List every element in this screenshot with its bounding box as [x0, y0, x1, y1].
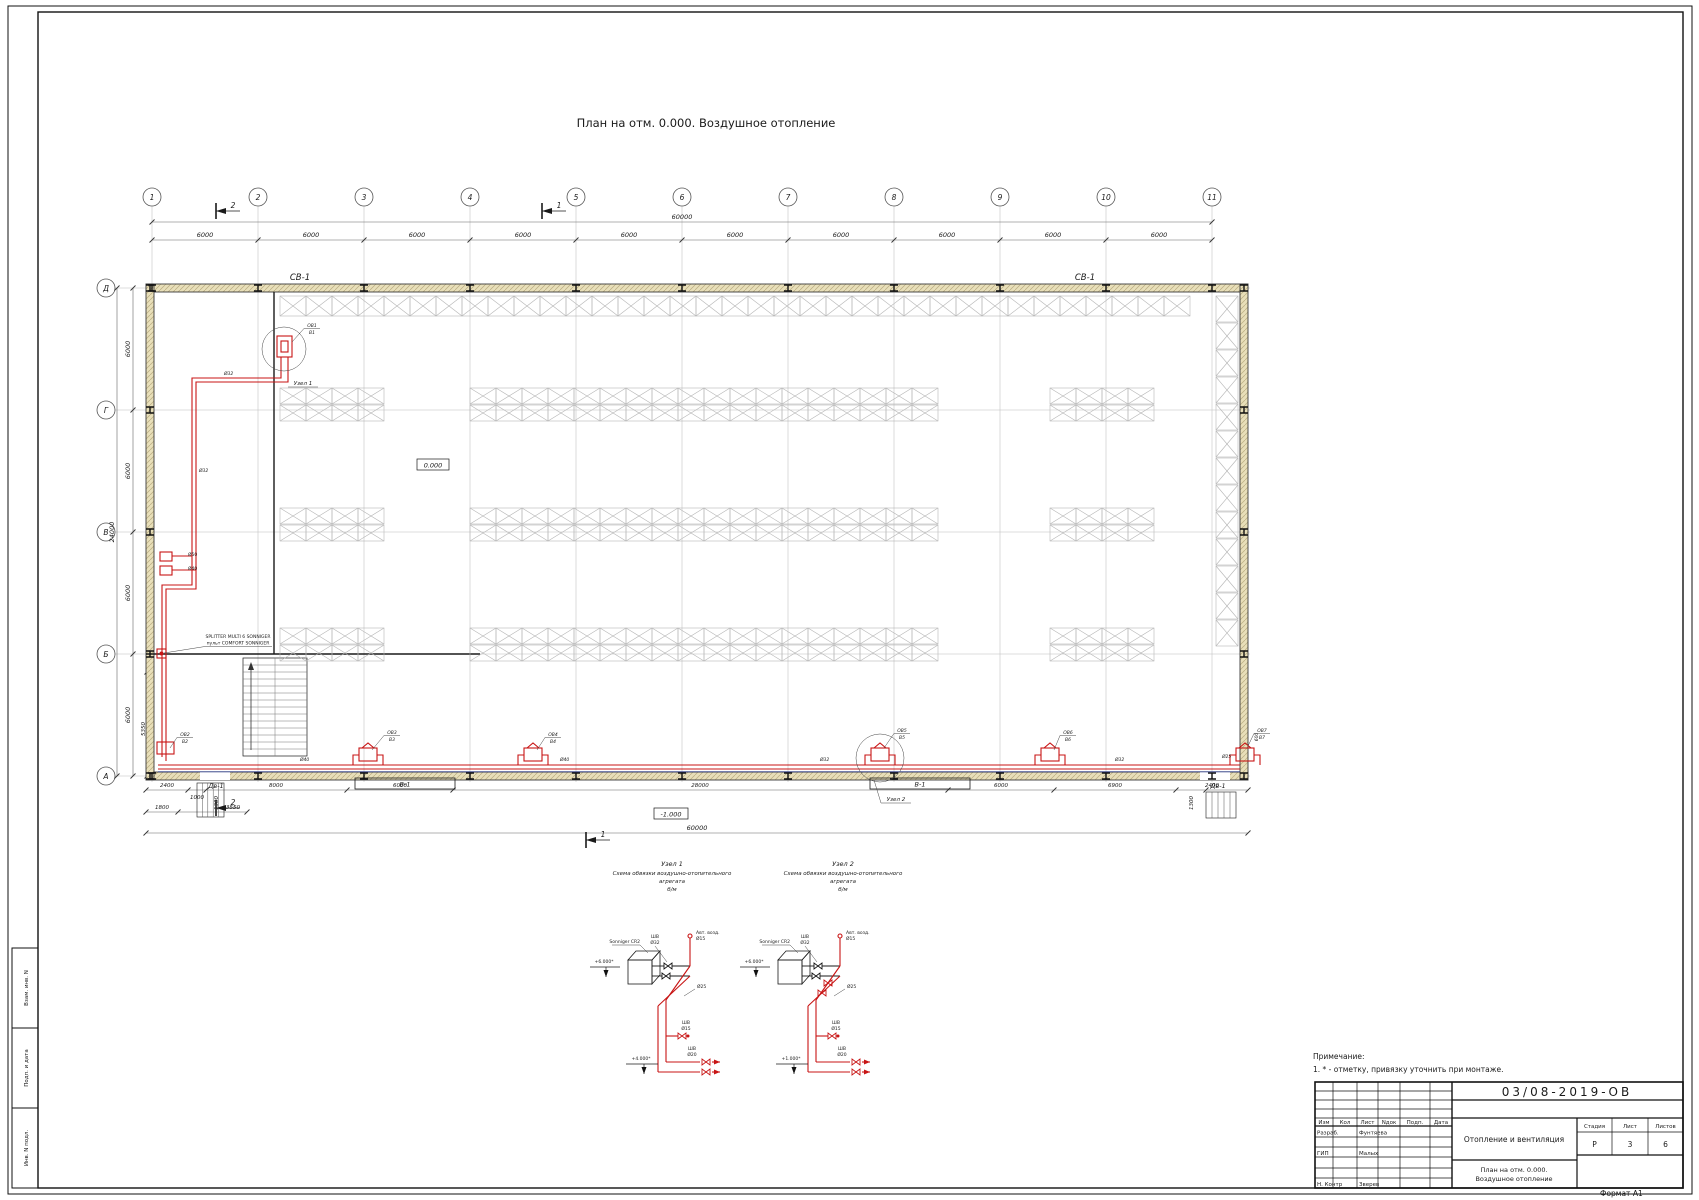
- heating-pipework: [157, 327, 1260, 782]
- valve-icon: [852, 1069, 860, 1075]
- detail-1-sub2: агрегата: [659, 879, 686, 885]
- dim-bay-label: 6000: [1045, 231, 1062, 239]
- detail-1-scale: б/м: [667, 887, 676, 893]
- flow-arrow: [714, 1060, 720, 1065]
- flow-arrow: [864, 1060, 870, 1065]
- flow-arrow: [714, 1070, 720, 1075]
- tb-stage-header: Стадия: [1584, 1124, 1605, 1130]
- grid-bubble-row-label: Д: [102, 284, 109, 293]
- valve-icon: [814, 963, 822, 969]
- detail-label: Ø25: [847, 983, 856, 990]
- unit-tag-bottom: В3: [389, 737, 395, 743]
- detail-label: Sonniger CR2: [759, 939, 790, 945]
- heater-stub: [1035, 755, 1065, 765]
- section-mark-2-top: 2: [216, 201, 240, 219]
- dim-bay-label: 6000: [515, 231, 532, 239]
- dim-bay-label: 6000: [833, 231, 850, 239]
- section-1-label: 1: [557, 201, 562, 210]
- tb-col-kol: Кол: [1340, 1120, 1351, 1126]
- dim-2400-l: 2400: [160, 783, 174, 789]
- tb-name-1: Фунтяева: [1359, 1131, 1387, 1137]
- valve-icon: [702, 1069, 710, 1075]
- detail-label: ШВ: [688, 1046, 696, 1052]
- unit-tag-top: ОВ6: [1063, 730, 1073, 736]
- grid-bubble-col-label: 1: [150, 193, 155, 202]
- notes-item-1: 1. * - отметку, привязку уточнить при мо…: [1313, 1065, 1503, 1074]
- tb-col-podp: Подп.: [1407, 1120, 1424, 1126]
- sheet-frame: Взам. инв. N Подп. и дата Инв. N подл.: [8, 6, 1692, 1194]
- valve-icon: [812, 973, 820, 979]
- flow-arrow: [864, 1070, 870, 1075]
- valve-icon: [662, 973, 670, 979]
- splitter-note-2: пульт COMFORT SONNIGER: [207, 641, 270, 647]
- detail-label: +1.000*: [782, 1056, 802, 1062]
- elev-arrow: [792, 1067, 797, 1074]
- drain-end: [837, 1035, 840, 1038]
- pipe-dn-vert: Ø32: [198, 467, 208, 474]
- heater-box-side: [802, 951, 810, 984]
- dim-6000-gr: 6000: [994, 783, 1008, 789]
- unit-tag-leader: [1248, 734, 1254, 747]
- grid-bubble-row-label: А: [102, 772, 108, 781]
- valve-icon: [828, 1033, 836, 1039]
- dim-5350: 5350: [141, 722, 147, 736]
- door-label-left: Дв-1: [207, 782, 223, 790]
- elev-arrow: [604, 970, 609, 977]
- detail-label: Ø32: [650, 939, 659, 946]
- detail-label: Sonniger CR2: [609, 939, 640, 945]
- dim-total-bottom: 60000: [687, 824, 708, 832]
- dim-bay-label: 6000: [939, 231, 956, 239]
- detail-1-title: Узел 1: [661, 860, 683, 868]
- heater-box: [628, 960, 652, 984]
- tb-sheet-header: Лист: [1623, 1124, 1638, 1130]
- steps-outline: [1206, 792, 1236, 818]
- detail-label: ШВ: [832, 1020, 840, 1026]
- grid-bubble-col-label: 9: [998, 193, 1003, 202]
- exterior-steps: [197, 783, 1236, 818]
- unit-tag-leader: [292, 329, 304, 343]
- detail-1-sub1: Схема обвязки воздушно-отопительного: [613, 871, 732, 877]
- notes-block: Примечание: 1. * - отметку, привязку уто…: [1313, 1052, 1503, 1074]
- elevation-basement: -1.000: [661, 811, 682, 819]
- dim-1000: 1000: [190, 795, 204, 801]
- grid-bubble-col-label: 11: [1207, 193, 1217, 202]
- valve-icon: [678, 1033, 686, 1039]
- beam-label-1: СВ-1: [290, 273, 310, 283]
- tb-col-list: Лист: [1361, 1120, 1376, 1126]
- detail-label: Ø20: [687, 1051, 696, 1058]
- dim-1300-l: 1300: [214, 796, 220, 810]
- grid-bubble-row-label: Б: [103, 650, 108, 659]
- dim-left-bay-label: 6000: [124, 463, 132, 480]
- unit-tag-bottom: В2: [182, 739, 188, 745]
- tb-doc-number: 03/08-2019-ОВ: [1502, 1085, 1632, 1099]
- beam-label-2: СВ-1: [1075, 273, 1095, 283]
- stamp-label-3: Инв. N подл.: [24, 1130, 30, 1167]
- heater-top: [874, 743, 886, 748]
- tb-name-2: Малых: [1359, 1151, 1379, 1157]
- unit-tag-bottom: В6: [1065, 737, 1071, 743]
- unit-tag-bottom: В5: [899, 735, 905, 741]
- heater-box-top: [778, 951, 810, 960]
- detail-label: Ø32: [800, 939, 809, 946]
- sheet-svg: Взам. инв. N Подп. и дата Инв. N подл. П…: [0, 0, 1699, 1200]
- detail-2-sub1: Схема обвязки воздушно-отопительного: [784, 871, 903, 877]
- elevation-zero: 0.000: [424, 462, 443, 470]
- detail-label: ШВ: [838, 1046, 846, 1052]
- air-vent-icon: [688, 934, 692, 938]
- unit-tag-top: ОВ1: [307, 323, 317, 329]
- heater-unit: [871, 748, 889, 761]
- heater-stub: [518, 755, 548, 765]
- dim-8000: 8000: [269, 783, 283, 789]
- detail-node-2: Узел 2 Схема обвязки воздушно-отопительн…: [740, 860, 903, 1075]
- valve-icon: [852, 1059, 860, 1065]
- unit-tag-bottom: В4: [550, 739, 556, 745]
- tb-name-3: Зверев: [1359, 1182, 1379, 1188]
- door-opening-left: [200, 772, 230, 780]
- detail-label: Ø15: [831, 1025, 840, 1032]
- detail-label: Ø15: [681, 1025, 690, 1032]
- unit-tag-top: ОВ4: [548, 732, 558, 738]
- dim-1300-r: 1300: [1189, 796, 1195, 810]
- plan-labels: СВ-1 СВ-1 0.000 -1.000 Дв-1 Дв-1 В-1 В-1…: [164, 273, 1270, 819]
- grid-bubble-col-label: 6: [680, 193, 685, 202]
- drawing-title: План на отм. 0.000. Воздушное отопление: [577, 116, 836, 130]
- unit-tag-top: ОВ2: [180, 732, 190, 738]
- tb-stage: Р: [1592, 1140, 1597, 1149]
- valve-icon: [664, 963, 672, 969]
- side-stamp: Взам. инв. N Подп. и дата Инв. N подл.: [12, 948, 38, 1188]
- detail-label: ШВ: [801, 934, 809, 940]
- dim-1800: 1800: [155, 805, 169, 811]
- staircase: [243, 658, 307, 756]
- heater-unit: [524, 748, 542, 761]
- detail-label: Авт. возд.: [696, 930, 720, 936]
- detail-line: [684, 989, 695, 996]
- node-flag-2: Узел 2: [887, 797, 906, 803]
- floor-plan: 1234567891011ДГВБА 600006000600060006000…: [97, 188, 1270, 848]
- pipe-dn-riser: Ø32: [223, 370, 233, 377]
- detail-label: Ø20: [837, 1051, 846, 1058]
- air-vent-icon: [838, 934, 842, 938]
- detail-label: ШВ: [682, 1020, 690, 1026]
- section-mark-1-top: 1: [542, 201, 566, 219]
- pipe-dn-5: Ø25: [1221, 753, 1231, 760]
- heater-box-top: [628, 951, 660, 960]
- detail-label: Ø25: [697, 983, 706, 990]
- heater-top: [527, 743, 539, 748]
- elev-arrow: [642, 1067, 647, 1074]
- detail-label: ШВ: [651, 934, 659, 940]
- unit-tags: ОВ1В1ОВ2В2ОВ3В3ОВ4В4ОВ5В5ОВ6В6ОВ7В7: [170, 323, 1270, 750]
- dim-6000-gl: 6000: [393, 783, 407, 789]
- unit-tag-bottom: В1: [309, 330, 315, 336]
- detail-line: [834, 989, 845, 996]
- dim-top-total-label: 60000: [672, 213, 693, 221]
- dim-3550: 3550: [226, 805, 240, 811]
- dim-bay-label: 6000: [303, 231, 320, 239]
- grid-bubble-col-label: 8: [892, 193, 897, 202]
- tb-role-1: Разраб.: [1317, 1131, 1339, 1137]
- detail-label: +6.000*: [595, 959, 615, 965]
- dim-2400-r: 2400: [1205, 783, 1219, 789]
- detail-line: [640, 945, 648, 953]
- detail-label: Авт. возд.: [846, 930, 870, 936]
- tb-role-2: ГИП: [1317, 1151, 1329, 1157]
- detail-2-sub2: агрегата: [830, 879, 857, 885]
- tb-project: Отопление и вентиляция: [1464, 1135, 1564, 1144]
- valve-icon: [702, 1059, 710, 1065]
- stair-arrow-head: [248, 662, 254, 670]
- tb-role-3: Н. Контр: [1317, 1182, 1343, 1188]
- heater-unit-1: [277, 336, 292, 357]
- pipe-dn-3: Ø32: [819, 756, 829, 763]
- dim-bay-label: 6000: [727, 231, 744, 239]
- tb-title-1: План на отм. 0.000.: [1480, 1166, 1547, 1174]
- dim-left-total-label: 24000: [108, 522, 116, 543]
- dim-bay-label: 6000: [197, 231, 214, 239]
- detail-label: Ø15: [846, 935, 855, 942]
- wall-bottom: [146, 772, 1248, 780]
- dim-bay-label: 6000: [621, 231, 638, 239]
- tb-col-data: Дата: [1434, 1120, 1448, 1126]
- right-dim: 600: [1254, 733, 1260, 742]
- dim-28000: 28000: [691, 783, 709, 789]
- heater-unit: [359, 748, 377, 761]
- section-1-label-b: 1: [601, 830, 606, 839]
- detail-label: +6.000*: [745, 959, 765, 965]
- roof-trusses: [280, 296, 1238, 661]
- grid-bubble-col-label: 4: [468, 193, 473, 202]
- grid-bubble-col-label: 2: [256, 193, 261, 202]
- heater-unit: [1041, 748, 1059, 761]
- heater-top: [1044, 743, 1056, 748]
- tb-sheets-header: Листов: [1655, 1124, 1676, 1130]
- detail-line: [790, 945, 798, 953]
- pipe-dn-4: Ø32: [1114, 756, 1124, 763]
- stamp-label-2: Подп. и дата: [24, 1049, 30, 1086]
- drain-end: [687, 1035, 690, 1038]
- dim-left-bay-label: 6000: [124, 707, 132, 724]
- grid-bubble-col-label: 7: [786, 193, 791, 202]
- heater-box: [778, 960, 802, 984]
- dim-bay-label: 6000: [1151, 231, 1168, 239]
- dim-left-bay-label: 6000: [124, 341, 132, 358]
- heater-stub: [353, 755, 383, 765]
- dim-left-bay-label: 6000: [124, 585, 132, 602]
- pump-dn-2: Ø40: [188, 565, 197, 572]
- splitter-note-1: SPLITTER MULTI 6 SONNIGER: [205, 634, 270, 640]
- tb-title-2: Воздушное отопление: [1475, 1175, 1552, 1183]
- unit-tag-top: ОВ3: [387, 730, 397, 736]
- wall-top: [146, 284, 1248, 292]
- grid-bubble-col-label: 10: [1101, 193, 1111, 202]
- elev-arrow: [754, 970, 759, 977]
- dim-bay-label: 6000: [409, 231, 426, 239]
- detail-label: Ø15: [696, 935, 705, 942]
- gate-label-right: В-1: [915, 781, 926, 789]
- detail-line: [658, 976, 690, 1006]
- dim-6900: 6900: [1108, 783, 1122, 789]
- title-block: Изм Кол Лист Nдок Подп. Дата Разраб. Фун…: [1315, 1082, 1683, 1188]
- detail-label: +4.000*: [632, 1056, 652, 1062]
- pipe-dn-2: Ø40: [559, 756, 569, 763]
- grid-bubble-col-label: 3: [362, 193, 367, 202]
- notes-header: Примечание:: [1313, 1052, 1365, 1061]
- detail-2-scale: б/м: [838, 887, 847, 893]
- drawing-sheet: Взам. инв. N Подп. и дата Инв. N подл. П…: [0, 0, 1699, 1200]
- stamp-label-1: Взам. инв. N: [24, 970, 30, 1006]
- format-label: Формат А1: [1600, 1189, 1643, 1198]
- valve-icon: [824, 980, 832, 986]
- node-flag-1: Узел 1: [294, 381, 312, 387]
- tb-sheets: 6: [1663, 1140, 1668, 1149]
- tb-col-ndok: Nдок: [1382, 1120, 1397, 1126]
- detail-node-1: Узел 1 Схема обвязки воздушно-отопительн…: [590, 860, 732, 1075]
- heater-box-side: [652, 951, 660, 984]
- section-2-label: 2: [231, 201, 236, 210]
- pipe-dn-1: Ø40: [299, 756, 309, 763]
- unit-tag-top: ОВ5: [897, 728, 907, 734]
- grid-bubble-col-label: 5: [574, 193, 579, 202]
- tb-sheet: 3: [1628, 1140, 1633, 1149]
- heater-stub: [865, 755, 895, 765]
- unit-tag-leader: [372, 736, 384, 751]
- detail-2-title: Узел 2: [832, 860, 854, 868]
- tb-col-izm: Изм: [1318, 1120, 1329, 1126]
- pump-dn-1: Ø50: [188, 551, 197, 558]
